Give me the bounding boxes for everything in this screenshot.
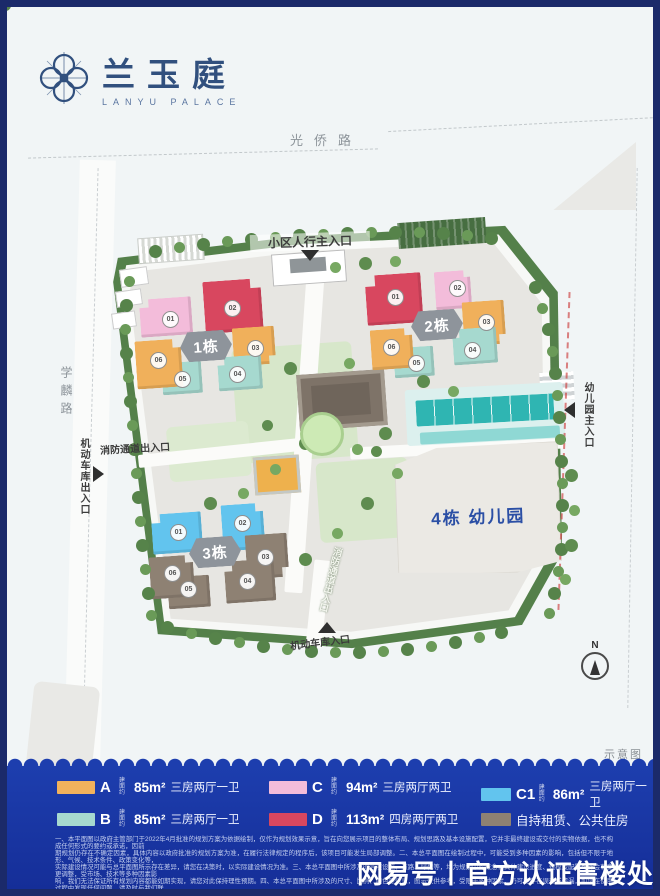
unit-badge: 01 bbox=[170, 524, 187, 541]
road-label-guangqiao: 光侨路 bbox=[290, 130, 362, 149]
project-name-cn: 兰玉庭 bbox=[102, 58, 241, 91]
unit-badge: 03 bbox=[247, 340, 264, 357]
legend-area-prefix: 建面约 bbox=[331, 778, 341, 796]
unit-badge: 01 bbox=[162, 311, 179, 328]
disclaimer-line: 一、本平面图以政府主管部门于2022年4月批准的规划方案为依据绘制，仅作为规划效… bbox=[55, 836, 613, 850]
legend-item-d: D 建面约 113m² 四房两厅两卫 bbox=[269, 810, 458, 828]
legend-area: 94m² bbox=[346, 780, 378, 795]
legend-code: D bbox=[312, 811, 326, 828]
unit-badge: 06 bbox=[150, 352, 167, 369]
unit-badge: 06 bbox=[164, 565, 181, 582]
unit-badge: 02 bbox=[234, 515, 251, 532]
unit-badge: 04 bbox=[239, 573, 256, 590]
kindergarten-building: 4栋 幼儿园 bbox=[394, 441, 562, 577]
cluster-2-label: 2栋 bbox=[424, 314, 451, 337]
watermark-netease: 网易号丨官方认证售楼处 bbox=[357, 854, 654, 891]
unit-badge: 05 bbox=[408, 355, 425, 372]
legend-desc: 三房两厅一卫 bbox=[171, 779, 240, 795]
site-plan-poster: 兰玉庭 LANYU PALACE 光侨路 学麟路 4栋 幼儿园 bbox=[0, 0, 660, 896]
cluster-badge-3: 3栋 bbox=[188, 535, 242, 569]
legend-area-prefix: 建面约 bbox=[119, 778, 129, 796]
legend-desc: 三房两厅一卫 bbox=[171, 811, 240, 827]
kindergarten-label: 4栋 幼儿园 bbox=[431, 501, 526, 529]
legend-code: C bbox=[312, 779, 326, 796]
garage-exit-arrow bbox=[93, 466, 104, 482]
legend-swatch-a bbox=[57, 781, 95, 794]
logo: 兰玉庭 LANYU PALACE bbox=[38, 50, 241, 107]
legend-swatch-b bbox=[57, 813, 95, 826]
legend-desc: 三房两厅一卫 bbox=[589, 778, 653, 810]
legend-swatch-d bbox=[269, 813, 307, 826]
courtyard-tree bbox=[300, 412, 344, 456]
legend-swatch-c bbox=[269, 781, 307, 794]
garage-exit-left-label: 机动车库出入口 bbox=[76, 438, 91, 515]
legend-item-a: A 建面约 85m² 三房两厅一卫 bbox=[57, 778, 240, 796]
legend-area: 85m² bbox=[134, 780, 166, 795]
unit-badge: 05 bbox=[174, 371, 191, 388]
compass-n-label: N bbox=[578, 640, 612, 651]
cluster-badge-1: 1栋 bbox=[179, 329, 233, 363]
unit-badge: 06 bbox=[383, 339, 400, 356]
cluster-3-label: 3栋 bbox=[202, 541, 229, 564]
unit-badge: 03 bbox=[478, 314, 495, 331]
legend-item-c1: C1 建面约 86m² 三房两厅一卫 bbox=[481, 778, 653, 810]
frame-top bbox=[0, 0, 660, 7]
legend-area: 85m² bbox=[134, 812, 166, 827]
road-label-xuelin: 学麟路 bbox=[58, 366, 75, 420]
entrance-arrow-down bbox=[301, 250, 319, 261]
legend-area: 86m² bbox=[553, 787, 585, 802]
legend-area-prefix: 建面约 bbox=[331, 810, 341, 828]
legend-desc: 四房两厅两卫 bbox=[389, 811, 458, 827]
kindergarten-entrance-label: 幼儿园主入口 bbox=[580, 382, 595, 448]
compass-needle bbox=[590, 660, 600, 675]
kindergarten-entrance-arrow bbox=[564, 402, 575, 418]
unit-badge: 04 bbox=[229, 366, 246, 383]
playground-court bbox=[253, 454, 302, 495]
unit-badge: 05 bbox=[180, 581, 197, 598]
legend-desc: 自持租赁、公共住房 bbox=[516, 810, 629, 829]
unit-badge: 01 bbox=[387, 289, 404, 306]
cluster-1-label: 1栋 bbox=[193, 335, 220, 358]
legend-area-prefix: 建面约 bbox=[539, 785, 548, 803]
outbuilding bbox=[111, 310, 137, 329]
frame-right bbox=[653, 0, 660, 896]
compass-circle bbox=[581, 652, 609, 680]
unit-badge: 02 bbox=[224, 300, 241, 317]
unit-badge: 02 bbox=[449, 280, 466, 297]
compass: N bbox=[578, 640, 612, 680]
legend-code: B bbox=[100, 811, 114, 828]
legend-item-c: C 建面约 94m² 三房两厅两卫 bbox=[269, 778, 452, 796]
lotus-logo-icon bbox=[38, 50, 90, 106]
legend-desc: 三房两厅两卫 bbox=[383, 779, 452, 795]
legend-item-b: B 建面约 85m² 三房两厅一卫 bbox=[57, 810, 240, 828]
legend-swatch-rental bbox=[481, 813, 511, 826]
cluster-badge-2: 2栋 bbox=[410, 308, 464, 342]
legend-code: C1 bbox=[516, 786, 534, 803]
legend-area: 113m² bbox=[346, 812, 384, 827]
legend-item-rental: 自持租赁、公共住房 bbox=[481, 810, 629, 829]
outbuilding bbox=[119, 266, 149, 288]
trellis bbox=[137, 234, 205, 265]
legend-area-prefix: 建面约 bbox=[119, 810, 129, 828]
frame-left bbox=[0, 0, 7, 896]
legend-code: A bbox=[100, 779, 114, 796]
unit-badge: 04 bbox=[464, 342, 481, 359]
project-name-en: LANYU PALACE bbox=[102, 97, 241, 107]
unit-badge: 03 bbox=[257, 549, 274, 566]
legend-swatch-c1 bbox=[481, 788, 511, 801]
